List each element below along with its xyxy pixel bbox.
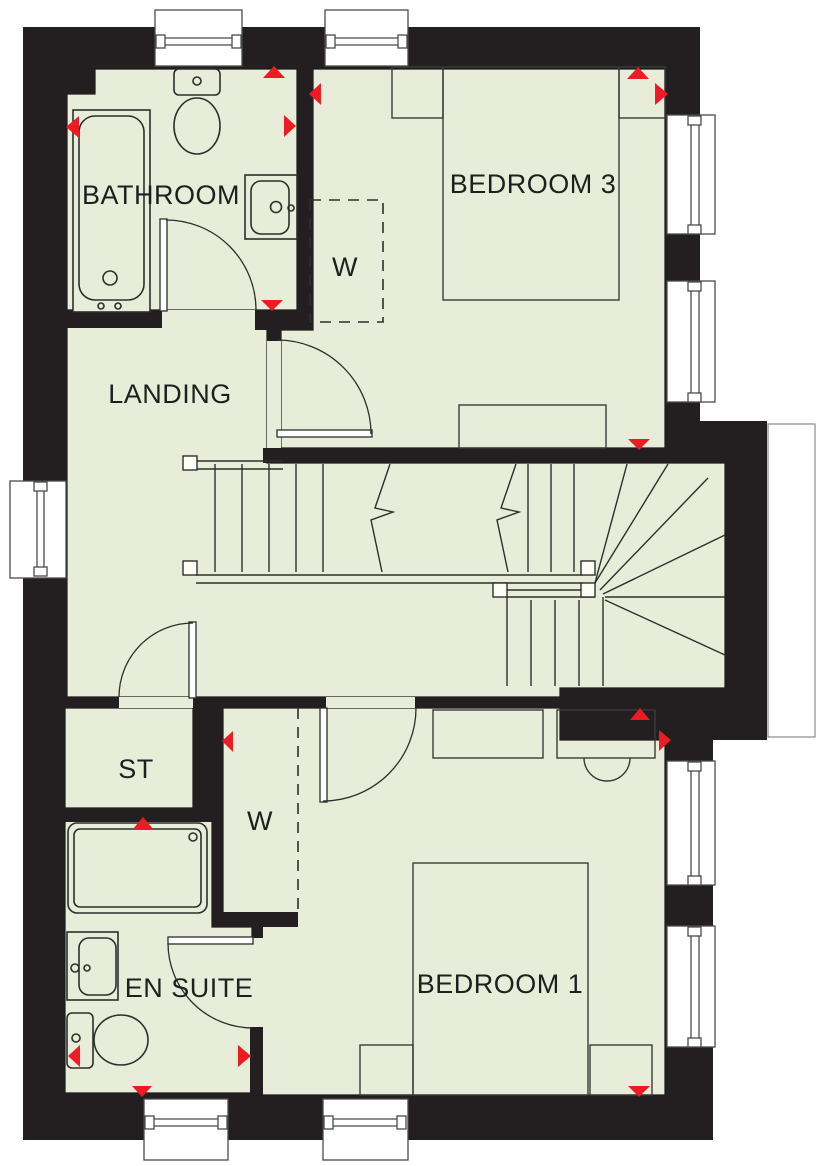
adjoining-structure-outline	[768, 424, 815, 737]
wardrobe-bedroom-1-label: W	[247, 806, 273, 836]
bath-icon	[73, 110, 150, 312]
shower-icon	[68, 823, 207, 913]
window-bathroom-top	[155, 10, 242, 66]
basin-icon	[245, 175, 297, 239]
bedroom-1-label: BEDROOM 1	[417, 969, 584, 999]
window-landing-left	[10, 481, 66, 578]
window-bedroom-3-right-2	[667, 281, 715, 402]
bedroom-3-label: BEDROOM 3	[450, 169, 617, 199]
wardrobe-bedroom-3-label: W	[332, 252, 358, 282]
floor-plan-svg: BATHROOM BEDROOM 3 W LANDING ST W EN SUI…	[0, 0, 838, 1166]
window-en-suite-bottom	[144, 1099, 228, 1160]
toilet-icon	[174, 69, 220, 154]
store-label: ST	[118, 754, 154, 784]
en-suite-basin-icon	[67, 932, 118, 1000]
window-bedroom-3-top	[325, 10, 408, 66]
bathroom-label: BATHROOM	[82, 180, 240, 210]
en-suite-label: EN SUITE	[125, 973, 254, 1003]
window-bedroom-3-right-1	[667, 115, 715, 234]
window-bedroom-1-right-1	[667, 761, 715, 885]
bedroom-1-floor	[223, 708, 665, 1095]
window-bedroom-1-right-2	[667, 926, 715, 1047]
landing-label: LANDING	[108, 379, 232, 409]
floor-plan-page: BATHROOM BEDROOM 3 W LANDING ST W EN SUI…	[0, 0, 838, 1166]
window-bedroom-1-bottom	[323, 1099, 408, 1160]
